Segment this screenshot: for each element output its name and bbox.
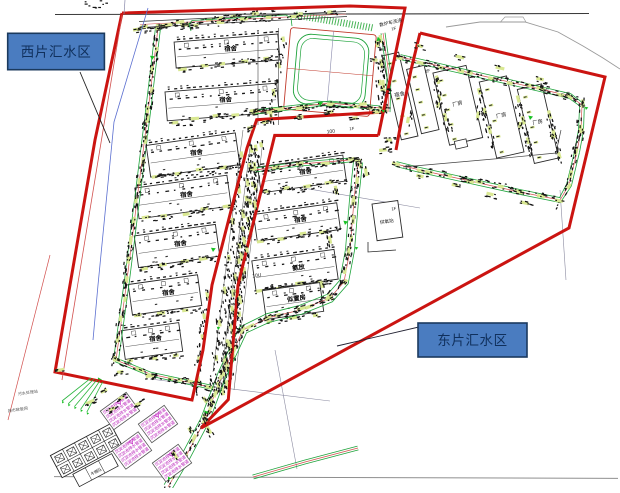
svg-text:东片汇水区: 东片汇水区 xyxy=(437,333,508,348)
svg-text:西片汇水区: 西片汇水区 xyxy=(21,45,92,60)
svg-text:1F: 1F xyxy=(349,126,355,132)
svg-text:100: 100 xyxy=(326,129,335,136)
